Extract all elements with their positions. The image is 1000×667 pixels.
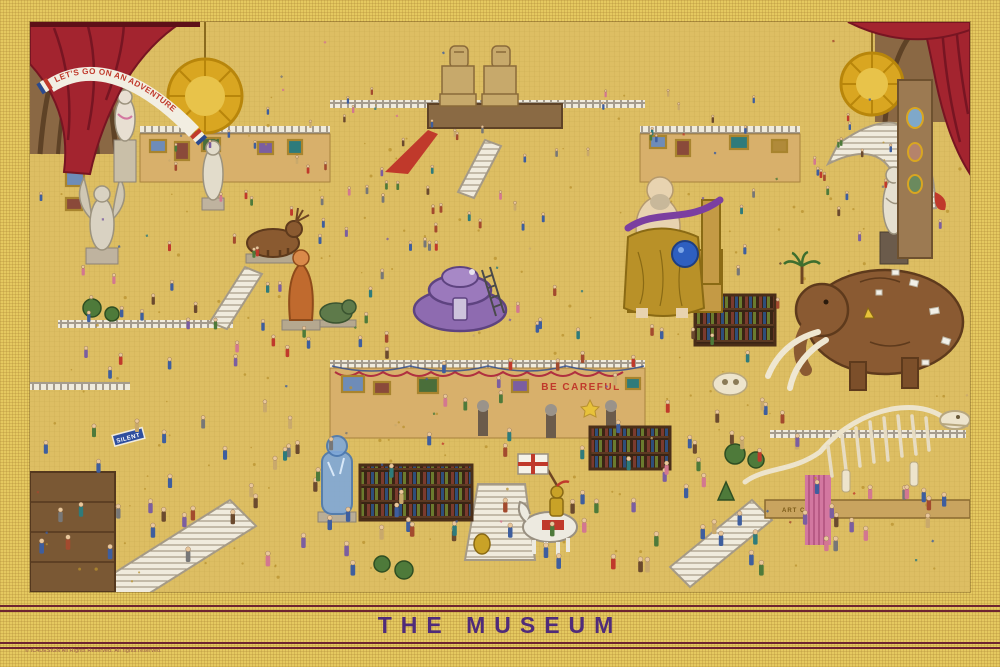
- coin: [679, 357, 681, 359]
- coin: [398, 421, 400, 423]
- person: [382, 194, 385, 203]
- framed-painting: [418, 378, 438, 393]
- person: [833, 536, 838, 551]
- person: [780, 411, 784, 424]
- person: [522, 221, 525, 231]
- coin: [458, 218, 461, 221]
- framed-painting: [730, 136, 748, 149]
- person: [719, 531, 724, 546]
- person: [175, 143, 178, 151]
- person: [389, 464, 393, 478]
- coin: [158, 444, 161, 447]
- coin: [618, 117, 621, 120]
- coin: [424, 235, 426, 237]
- coin: [863, 262, 866, 265]
- coin: [319, 189, 321, 191]
- coin: [147, 475, 149, 477]
- coin: [171, 193, 173, 195]
- person: [740, 205, 743, 214]
- person: [442, 361, 446, 373]
- coin: [477, 229, 479, 231]
- person: [434, 223, 437, 233]
- terrace-rail-left: [58, 320, 233, 328]
- coin: [267, 377, 270, 380]
- person: [654, 532, 659, 547]
- person: [427, 432, 431, 445]
- coin: [573, 476, 576, 479]
- coin: [78, 568, 81, 571]
- coin: [384, 578, 386, 580]
- person: [399, 490, 403, 504]
- coin: [96, 324, 99, 327]
- confetti: [282, 89, 284, 91]
- person: [148, 499, 153, 513]
- person: [344, 541, 349, 556]
- person: [296, 155, 299, 164]
- wood-alcove: [30, 472, 115, 592]
- person: [120, 306, 124, 317]
- person: [582, 518, 587, 533]
- coin: [722, 371, 723, 372]
- person: [152, 294, 155, 305]
- person: [135, 419, 139, 432]
- person: [743, 244, 746, 254]
- person: [381, 269, 384, 280]
- person: [605, 90, 607, 98]
- person: [272, 335, 276, 347]
- person: [385, 347, 389, 359]
- person: [479, 219, 482, 229]
- coin: [852, 208, 854, 210]
- confetti: [433, 413, 435, 415]
- mammoth-skull: [713, 373, 747, 395]
- coin: [124, 542, 126, 544]
- confetti: [496, 266, 499, 269]
- person: [539, 318, 543, 329]
- coin: [46, 543, 48, 545]
- person: [316, 468, 320, 482]
- coin: [403, 230, 405, 232]
- coin: [248, 135, 250, 137]
- person: [394, 503, 399, 517]
- dome-door: [453, 298, 467, 320]
- coin: [129, 505, 130, 506]
- person: [905, 485, 909, 499]
- coin: [389, 459, 392, 462]
- person: [611, 554, 616, 569]
- person: [79, 502, 84, 516]
- coin: [375, 104, 377, 106]
- person: [369, 287, 372, 298]
- person: [359, 336, 363, 348]
- coin: [709, 390, 711, 392]
- person: [223, 446, 227, 460]
- person: [307, 165, 310, 174]
- person: [942, 492, 947, 506]
- person: [432, 205, 435, 214]
- person: [396, 181, 399, 190]
- person: [58, 508, 63, 523]
- person: [631, 498, 636, 512]
- coin: [883, 159, 885, 161]
- person: [431, 119, 434, 127]
- person: [385, 331, 389, 342]
- person: [350, 560, 355, 575]
- person: [352, 105, 354, 113]
- coin: [116, 377, 119, 380]
- person: [749, 550, 754, 565]
- illustration-canvas: BE CAREFUL: [30, 22, 970, 592]
- coin: [250, 447, 252, 449]
- person: [820, 169, 823, 178]
- person: [803, 510, 808, 525]
- person: [348, 187, 351, 196]
- confetti: [455, 520, 457, 522]
- person: [235, 341, 239, 353]
- person: [379, 525, 384, 540]
- person: [278, 281, 281, 292]
- museum-poster: BE CAREFUL: [0, 0, 1000, 667]
- person: [823, 172, 826, 181]
- confetti: [702, 197, 704, 199]
- confetti: [581, 290, 583, 292]
- person: [702, 473, 706, 487]
- coin: [406, 138, 408, 140]
- person: [452, 521, 457, 536]
- confetti: [381, 464, 383, 466]
- person: [371, 87, 373, 95]
- person: [922, 488, 926, 502]
- coin: [388, 148, 391, 151]
- coin: [265, 143, 267, 145]
- coin: [247, 317, 249, 319]
- person: [346, 507, 351, 522]
- person: [431, 165, 434, 174]
- person: [847, 113, 849, 121]
- coin: [364, 217, 366, 219]
- person: [307, 337, 311, 349]
- coin: [244, 373, 247, 376]
- coin: [364, 143, 366, 145]
- person: [553, 285, 556, 296]
- person: [409, 241, 412, 251]
- person: [846, 191, 849, 200]
- rule-bottom-1: [0, 642, 1000, 644]
- person: [273, 456, 277, 470]
- person: [497, 376, 501, 388]
- framed-painting: [512, 380, 528, 392]
- person: [254, 140, 257, 148]
- person: [302, 326, 306, 337]
- person: [616, 420, 620, 433]
- person: [580, 446, 584, 460]
- person: [602, 102, 604, 110]
- person: [84, 346, 88, 358]
- person: [194, 302, 197, 313]
- museum-illustration: BE CAREFUL: [30, 22, 970, 592]
- person: [66, 535, 71, 550]
- coin: [391, 268, 393, 270]
- person: [231, 510, 236, 525]
- person: [267, 107, 269, 115]
- confetti: [37, 491, 39, 493]
- person: [581, 351, 585, 363]
- person: [837, 139, 840, 147]
- person: [514, 201, 517, 211]
- person: [594, 499, 599, 513]
- person: [186, 547, 191, 562]
- framed-painting: [650, 136, 666, 148]
- person: [715, 410, 719, 423]
- coin: [891, 523, 894, 526]
- person: [112, 273, 115, 284]
- person: [209, 140, 212, 148]
- confetti: [180, 135, 182, 137]
- person: [627, 457, 631, 471]
- person: [858, 231, 861, 241]
- terrace-rail-bottom-left: [30, 382, 130, 390]
- coin: [729, 230, 731, 232]
- person: [889, 144, 892, 152]
- person: [666, 400, 670, 413]
- person: [283, 447, 287, 461]
- person: [182, 513, 187, 528]
- coin: [639, 550, 642, 553]
- gallery-right: [640, 126, 800, 182]
- person: [162, 430, 166, 443]
- coin: [561, 334, 564, 337]
- coin: [53, 422, 56, 425]
- person: [693, 440, 697, 453]
- coin: [814, 477, 817, 480]
- person: [385, 181, 388, 190]
- coin: [718, 429, 720, 431]
- coin: [124, 296, 127, 299]
- person: [523, 154, 526, 163]
- person: [701, 525, 706, 540]
- coin: [619, 493, 621, 495]
- person: [87, 311, 91, 322]
- coin: [611, 491, 613, 493]
- person: [499, 391, 503, 404]
- person: [245, 190, 248, 199]
- person: [364, 312, 368, 323]
- coin: [958, 167, 961, 170]
- person: [322, 218, 325, 228]
- person: [758, 448, 762, 462]
- person: [443, 394, 447, 407]
- person: [108, 544, 113, 559]
- person: [544, 543, 549, 558]
- gold-urn: [474, 534, 490, 554]
- person: [191, 506, 196, 521]
- person: [815, 480, 819, 494]
- person: [516, 302, 519, 313]
- coin: [321, 257, 323, 259]
- person: [631, 355, 635, 367]
- coin: [169, 434, 171, 436]
- person: [261, 319, 265, 330]
- coin: [215, 138, 217, 140]
- person: [712, 519, 717, 534]
- person: [347, 96, 349, 104]
- person: [753, 96, 755, 104]
- person: [287, 444, 291, 458]
- person: [140, 309, 144, 320]
- person: [468, 212, 471, 222]
- coin: [253, 463, 256, 466]
- coin: [778, 228, 781, 231]
- person: [939, 219, 942, 229]
- person: [116, 504, 121, 519]
- person: [234, 354, 238, 366]
- person: [760, 398, 764, 411]
- confetti: [285, 385, 288, 388]
- coin: [444, 454, 446, 456]
- coin: [370, 175, 373, 178]
- person: [638, 557, 643, 572]
- coin: [554, 352, 557, 355]
- person: [151, 523, 156, 538]
- coin: [801, 210, 804, 213]
- coin: [946, 210, 949, 213]
- coin: [71, 369, 73, 371]
- person: [824, 536, 829, 551]
- person: [650, 324, 654, 335]
- person: [499, 191, 502, 200]
- coin: [186, 211, 188, 213]
- confetti: [882, 186, 884, 188]
- person: [753, 530, 758, 545]
- person: [329, 437, 333, 450]
- person: [613, 373, 617, 385]
- confetti: [832, 40, 835, 43]
- coin: [131, 580, 133, 582]
- coin: [795, 564, 797, 566]
- coin: [378, 439, 381, 442]
- coin: [275, 564, 277, 566]
- person: [849, 518, 854, 533]
- confetti: [714, 152, 716, 154]
- person: [730, 431, 734, 444]
- person: [456, 132, 459, 140]
- confetti: [374, 108, 376, 110]
- coin: [506, 488, 509, 491]
- person: [696, 458, 700, 472]
- person: [343, 115, 345, 123]
- coin: [562, 148, 564, 150]
- person: [650, 132, 653, 140]
- person: [324, 162, 327, 171]
- person: [428, 241, 431, 251]
- coin: [769, 413, 771, 415]
- person: [849, 122, 852, 130]
- coin: [177, 253, 180, 256]
- coin: [395, 158, 397, 160]
- coin: [735, 251, 737, 253]
- person: [503, 498, 508, 513]
- coin: [942, 395, 945, 398]
- coin: [677, 333, 679, 335]
- person: [290, 206, 293, 216]
- person: [321, 196, 324, 205]
- person: [201, 416, 205, 429]
- coin: [268, 487, 270, 489]
- person: [737, 265, 740, 275]
- person: [82, 265, 85, 275]
- person: [837, 207, 840, 217]
- person: [688, 435, 692, 448]
- framed-painting: [626, 378, 640, 389]
- person: [228, 130, 231, 138]
- person: [660, 328, 664, 339]
- coin: [370, 567, 372, 569]
- person: [309, 120, 312, 128]
- person: [655, 134, 658, 142]
- person: [826, 186, 829, 195]
- confetti: [146, 234, 149, 237]
- coin: [271, 97, 273, 99]
- person: [108, 367, 112, 379]
- person: [295, 441, 299, 454]
- coin: [95, 567, 98, 570]
- person: [737, 511, 742, 526]
- person: [249, 483, 253, 497]
- coin: [83, 390, 85, 392]
- person: [570, 499, 575, 513]
- person: [214, 318, 218, 329]
- person: [266, 551, 271, 566]
- coin: [620, 212, 622, 214]
- coin: [863, 228, 865, 230]
- person: [550, 522, 555, 537]
- person: [556, 554, 561, 569]
- coin: [494, 257, 497, 260]
- person: [556, 359, 560, 371]
- coin: [709, 323, 710, 324]
- coin: [848, 270, 850, 272]
- coin: [388, 439, 390, 441]
- person: [288, 416, 292, 429]
- coin: [166, 401, 168, 403]
- person: [44, 440, 48, 453]
- person: [252, 248, 255, 258]
- framed-painting: [374, 382, 390, 394]
- rule-top-1: [0, 605, 1000, 607]
- person: [119, 353, 123, 365]
- person: [503, 443, 507, 457]
- confetti: [682, 133, 685, 136]
- person: [256, 246, 259, 256]
- person: [684, 484, 688, 498]
- coin: [278, 295, 281, 298]
- coin: [266, 124, 269, 127]
- person: [266, 282, 269, 293]
- person: [864, 526, 869, 541]
- coin: [569, 186, 572, 189]
- person: [318, 234, 321, 244]
- person: [301, 533, 306, 548]
- person: [645, 557, 650, 572]
- person: [366, 185, 369, 194]
- person: [834, 513, 839, 528]
- coin: [208, 464, 210, 466]
- person: [678, 103, 680, 111]
- coin: [590, 317, 592, 319]
- framed-painting: [342, 376, 364, 392]
- person: [587, 148, 590, 157]
- person: [92, 424, 96, 437]
